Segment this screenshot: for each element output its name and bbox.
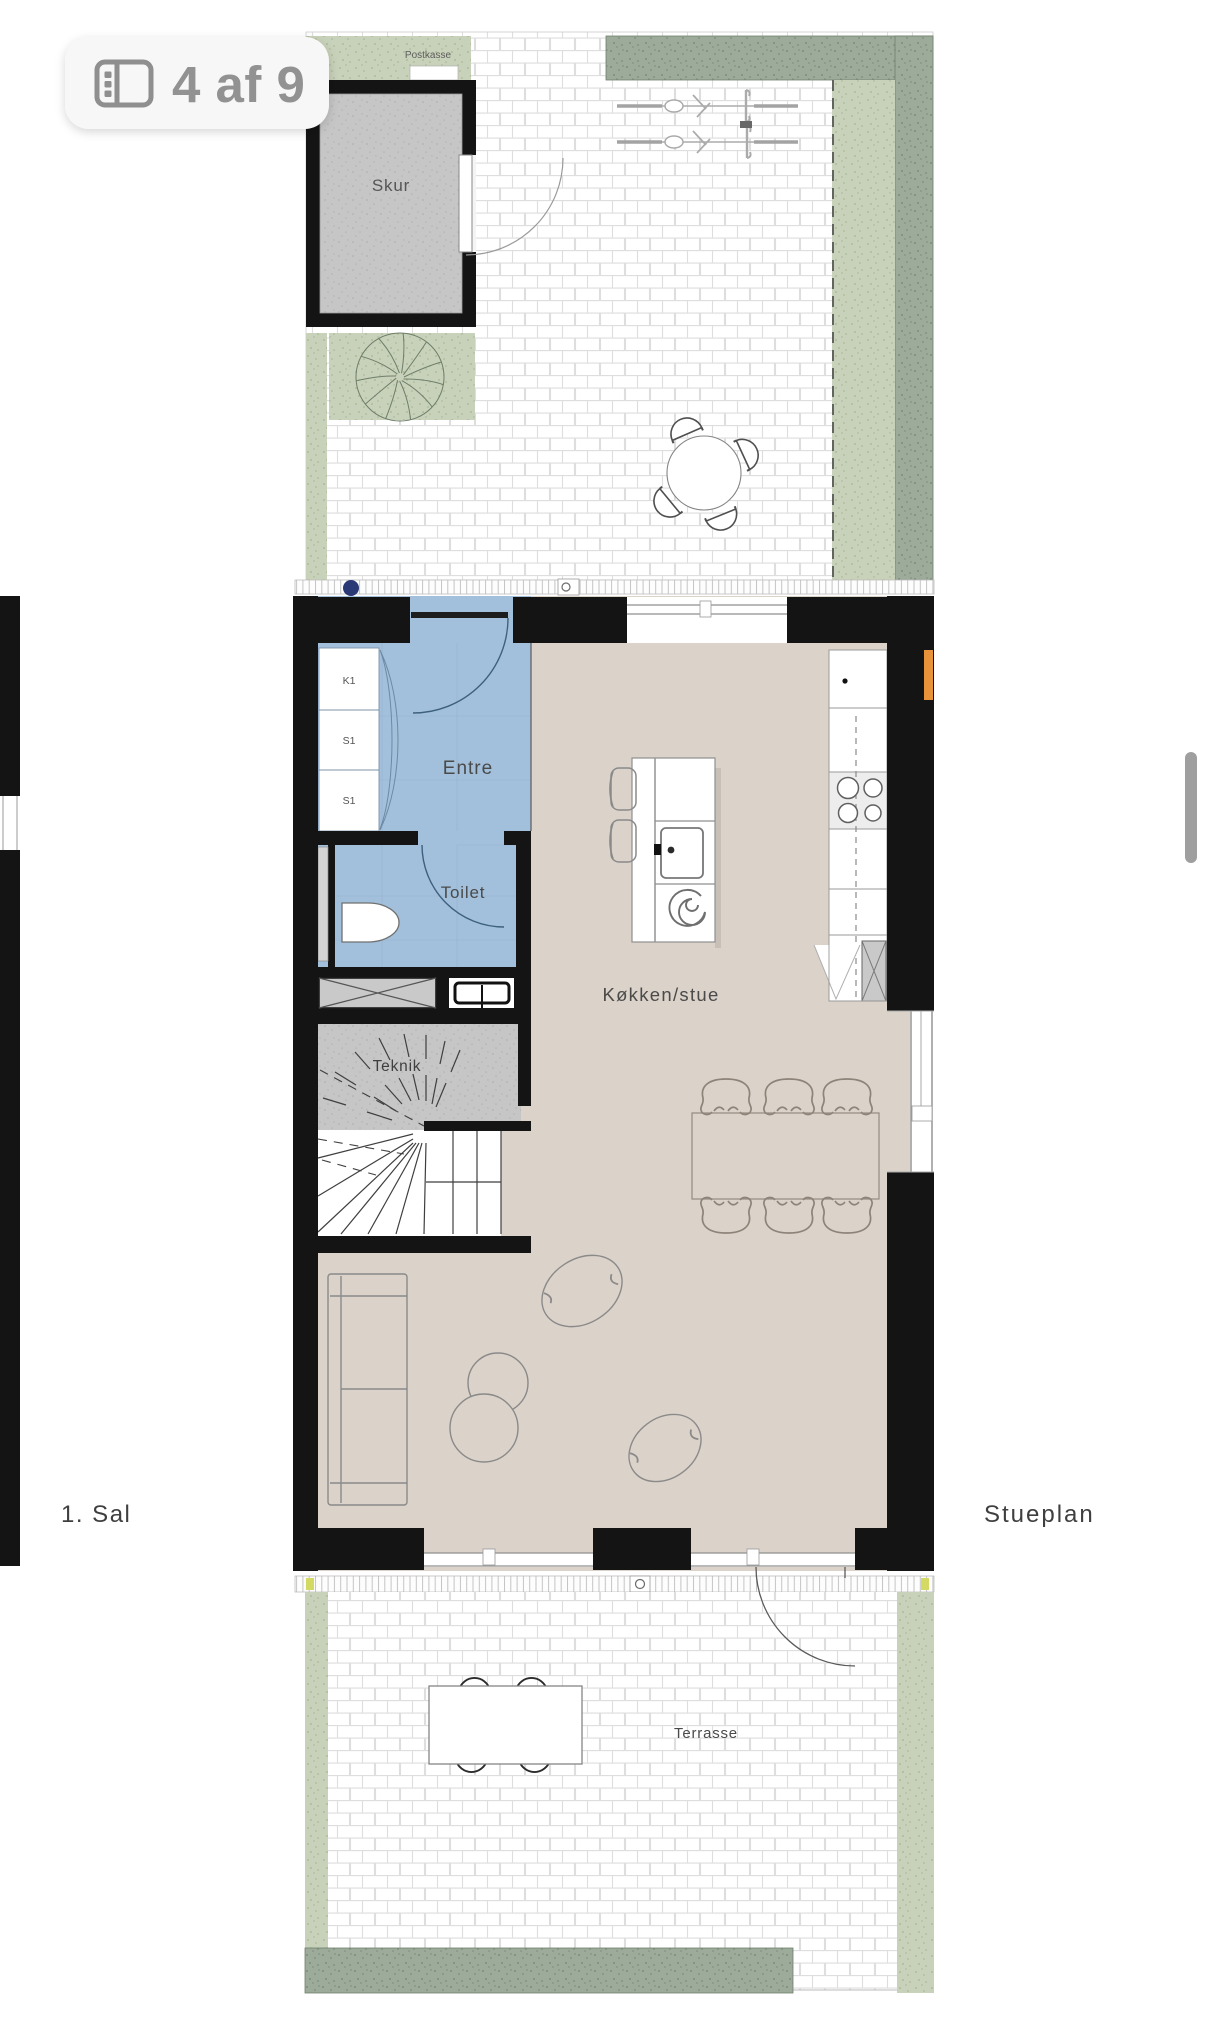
svg-text:Entre: Entre — [443, 758, 493, 779]
svg-text:S1: S1 — [343, 735, 356, 747]
svg-text:Terrasse: Terrasse — [674, 1725, 738, 1742]
svg-text:Køkken/stue: Køkken/stue — [602, 984, 719, 1005]
svg-text:Stueplan: Stueplan — [984, 1501, 1095, 1528]
svg-text:Postkasse: Postkasse — [405, 50, 452, 61]
svg-text:Skur: Skur — [372, 176, 410, 195]
svg-text:Toilet: Toilet — [441, 883, 486, 902]
svg-text:S1: S1 — [343, 795, 356, 807]
svg-text:1. Sal: 1. Sal — [61, 1501, 131, 1528]
svg-text:K1: K1 — [343, 675, 356, 687]
svg-text:Teknik: Teknik — [373, 1058, 422, 1075]
svg-text:4 af 9: 4 af 9 — [172, 56, 305, 113]
